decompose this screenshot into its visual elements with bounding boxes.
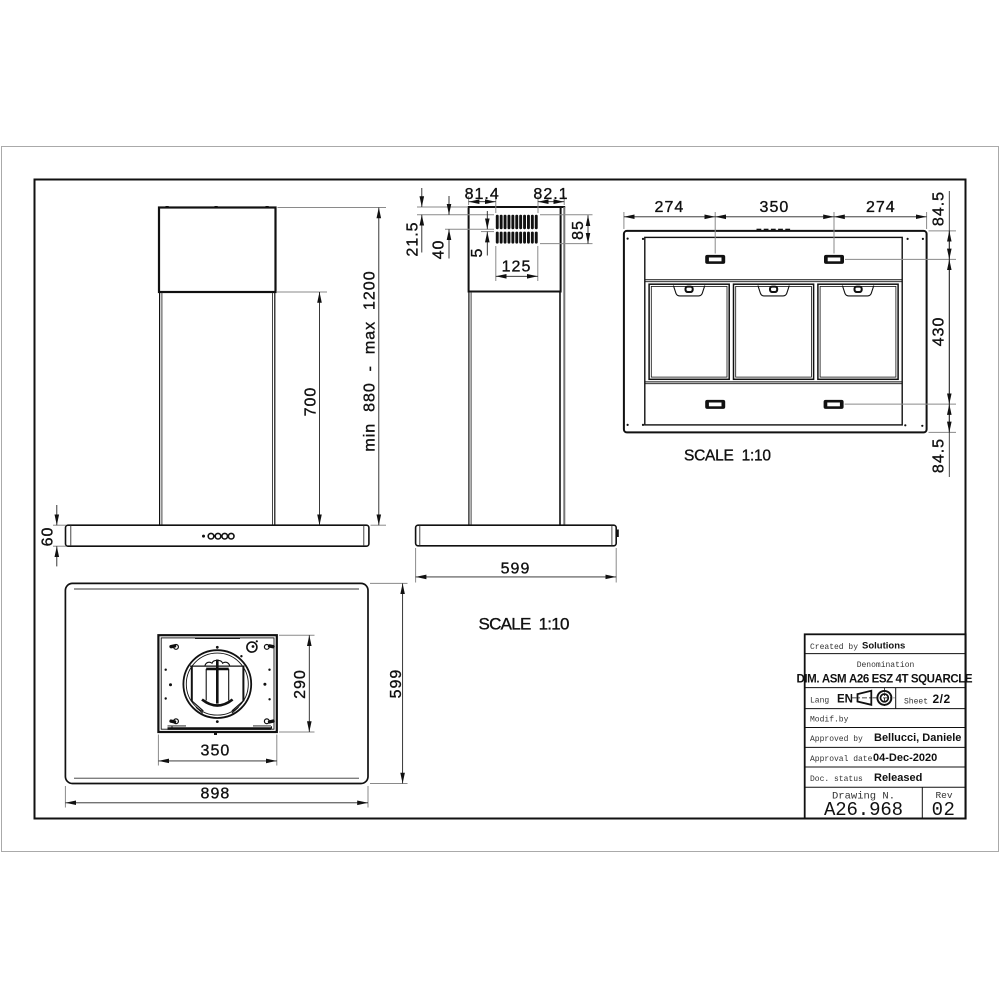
svg-text:Sheet: Sheet — [904, 697, 928, 706]
svg-text:85: 85 — [570, 220, 587, 240]
svg-text:350: 350 — [201, 743, 231, 760]
svg-text:599: 599 — [501, 561, 531, 578]
svg-text:84.5: 84.5 — [931, 438, 948, 473]
svg-text:84.5: 84.5 — [931, 191, 948, 226]
svg-text:82.1: 82.1 — [533, 186, 568, 203]
svg-text:350: 350 — [760, 199, 790, 216]
svg-text:Approval date: Approval date — [810, 755, 873, 764]
svg-text:Denomination: Denomination — [857, 661, 915, 670]
svg-text:290: 290 — [292, 669, 309, 699]
svg-text:700: 700 — [303, 387, 320, 417]
svg-text:Approved by: Approved by — [810, 735, 863, 744]
svg-text:2/2: 2/2 — [933, 692, 951, 706]
svg-text:21.5: 21.5 — [405, 221, 422, 256]
svg-text:Doc. status: Doc. status — [810, 775, 863, 784]
svg-text:81.4: 81.4 — [465, 186, 500, 203]
svg-text:SCALE 1:10: SCALE 1:10 — [479, 615, 570, 634]
svg-text:SCALE 1:10: SCALE 1:10 — [684, 447, 771, 464]
svg-text:Released: Released — [874, 772, 922, 784]
svg-text:Modif.by: Modif.by — [810, 715, 849, 724]
svg-text:60: 60 — [39, 527, 56, 547]
svg-text:02: 02 — [932, 799, 956, 821]
svg-text:Lang: Lang — [810, 696, 829, 705]
svg-text:EN: EN — [837, 693, 853, 705]
svg-text:430: 430 — [931, 317, 948, 347]
svg-text:599: 599 — [388, 669, 405, 699]
svg-text:274: 274 — [866, 199, 896, 216]
svg-text:Bellucci, Daniele: Bellucci, Daniele — [874, 732, 961, 744]
svg-text:A26.968: A26.968 — [824, 799, 903, 821]
svg-text:125: 125 — [502, 259, 532, 276]
svg-text:Solutions: Solutions — [862, 641, 905, 652]
svg-text:DIM. ASM A26 ESZ 4T SQUARCLE: DIM. ASM A26 ESZ 4T SQUARCLE — [797, 674, 973, 686]
svg-text:Created by: Created by — [810, 643, 858, 652]
svg-text:04-Dec-2020: 04-Dec-2020 — [873, 752, 937, 764]
svg-text:40: 40 — [430, 240, 447, 260]
svg-text:274: 274 — [655, 199, 685, 216]
svg-text:min 880 - max 1200: min 880 - max 1200 — [362, 270, 379, 451]
svg-text:5: 5 — [469, 248, 486, 258]
svg-text:898: 898 — [201, 785, 231, 802]
